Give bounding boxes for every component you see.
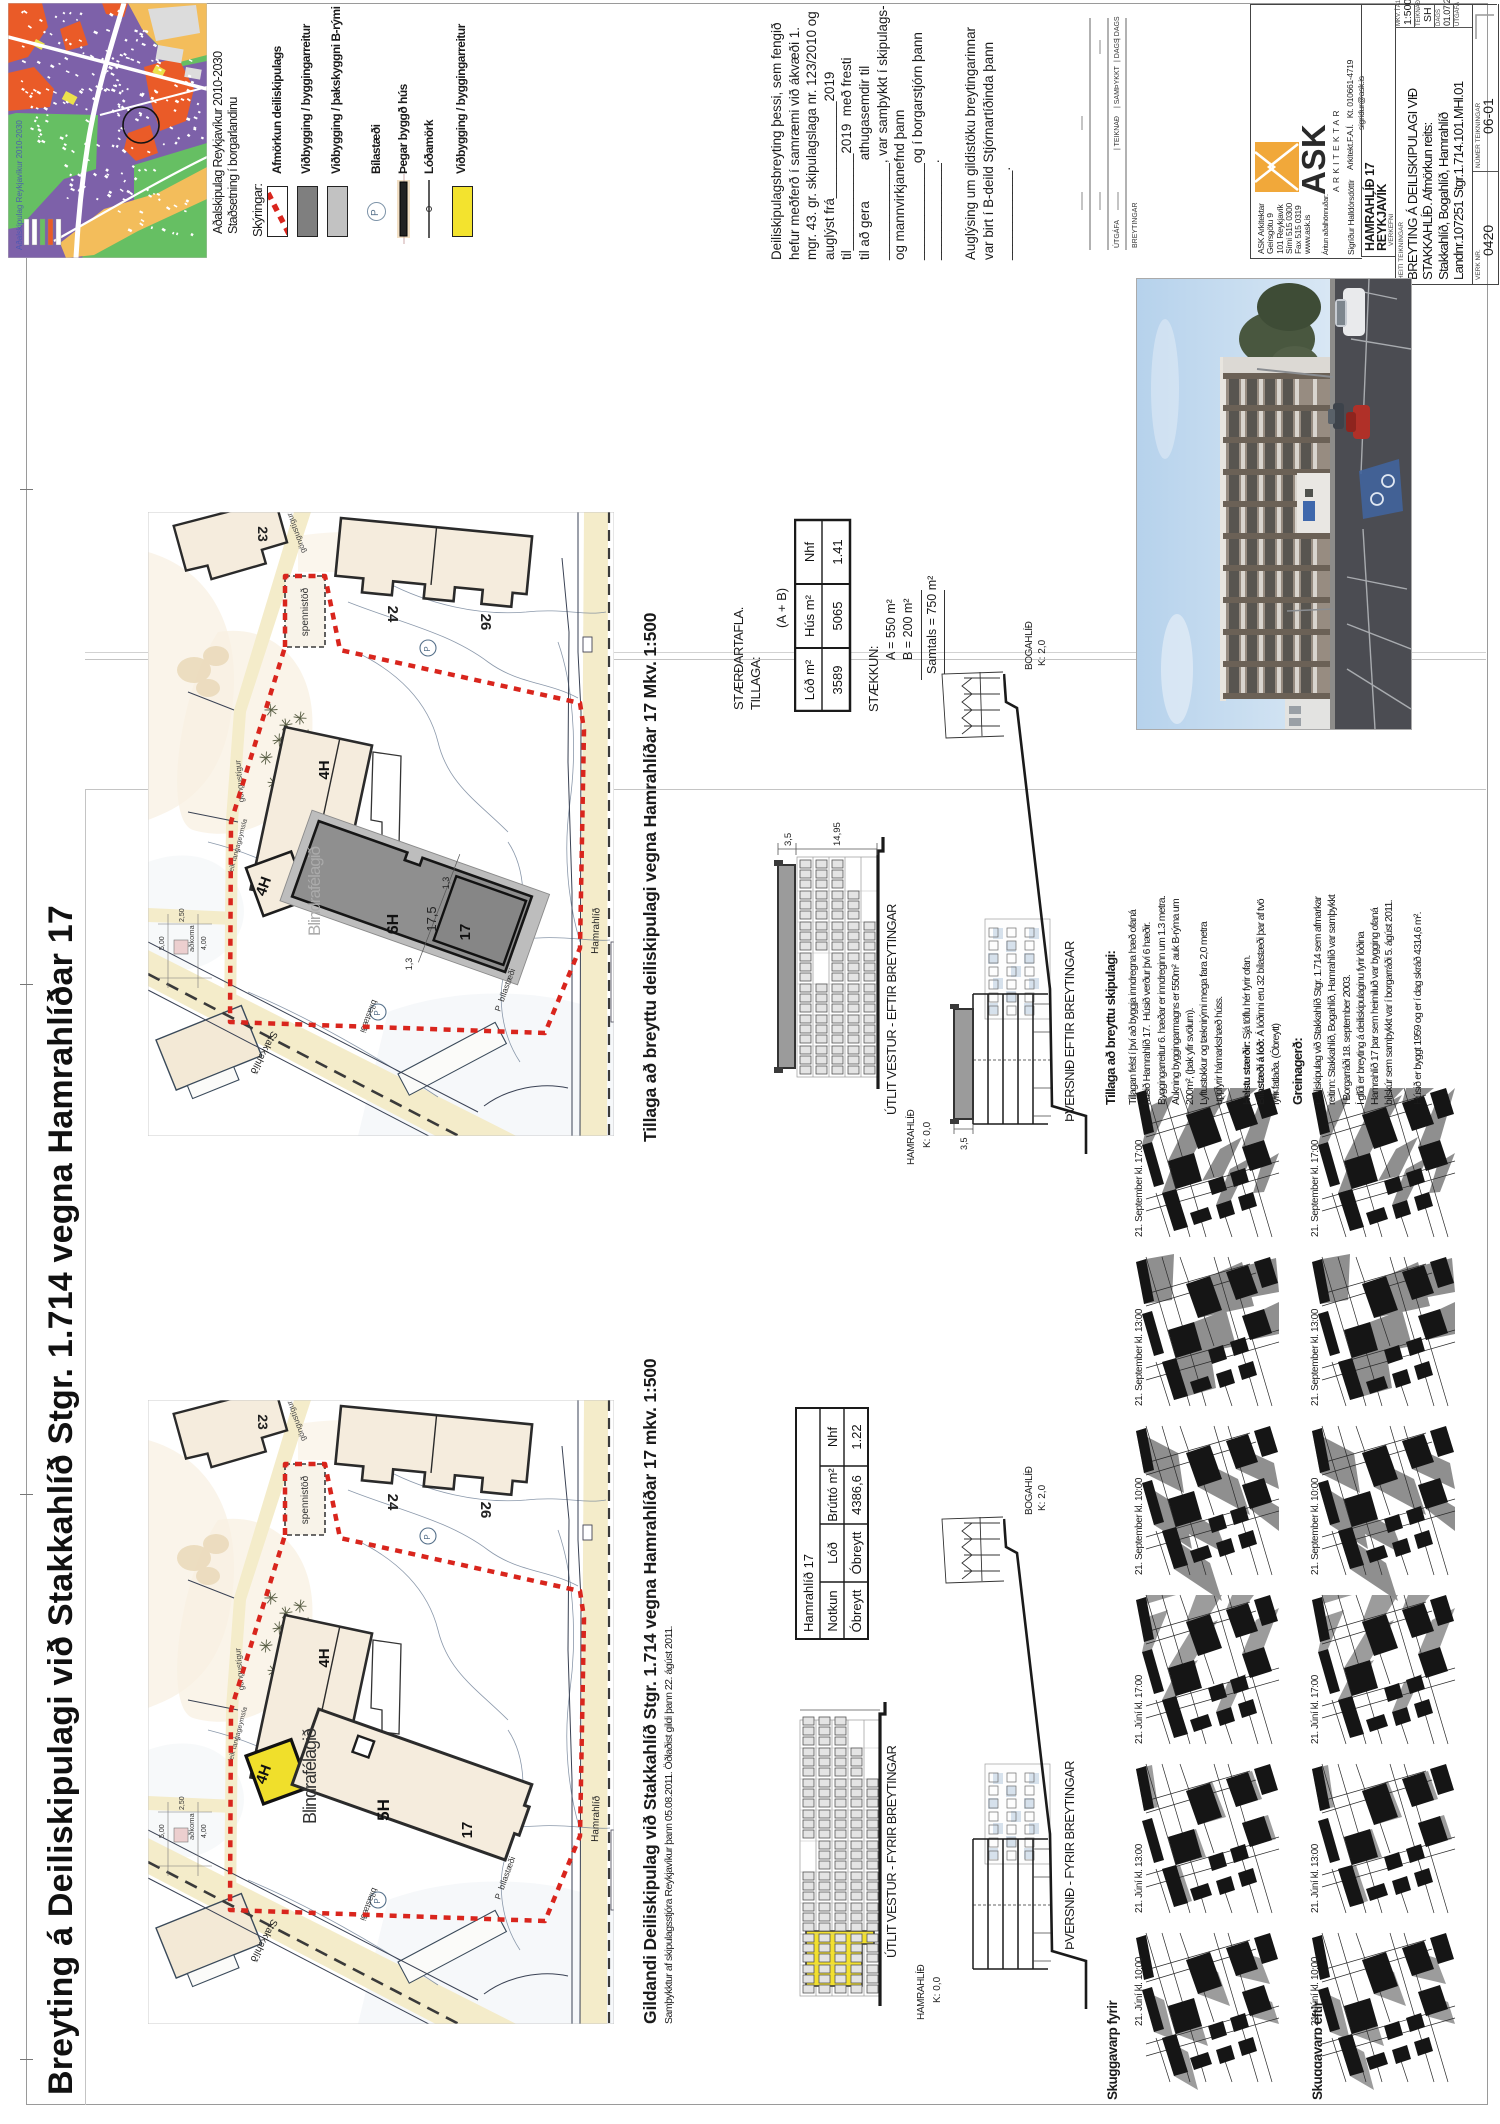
svg-text:23: 23: [255, 526, 271, 542]
svg-text:4H: 4H: [316, 1648, 333, 1667]
svg-text:HAMRAHLÍÐ: HAMRAHLÍÐ: [914, 1965, 927, 2020]
svg-text:K: 2,0: K: 2,0: [1037, 639, 1048, 666]
svg-text:| SAMÞYKKT: | SAMÞYKKT: [1114, 65, 1121, 108]
svg-text:aðkoma: aðkoma: [187, 924, 196, 952]
svg-text:21. Júní kl. 10:00: 21. Júní kl. 10:00: [1134, 1956, 1145, 2026]
svg-text:1,3: 1,3: [404, 958, 414, 971]
svg-text:Blindrafélagið: Blindrafélagið: [305, 846, 324, 936]
svg-text:1,3: 1,3: [441, 877, 451, 890]
svg-text:spennistöð: spennistöð: [299, 587, 311, 636]
svg-text:Brúttó m²: Brúttó m²: [825, 1468, 840, 1522]
svg-text:BREYTINGAR: BREYTINGAR: [1132, 202, 1139, 248]
svg-text:Nhf: Nhf: [825, 1426, 840, 1447]
svg-text:21. September kl. 17:00: 21. September kl. 17:00: [1310, 1139, 1321, 1237]
svg-text:Hamrahlíð: Hamrahlíð: [589, 907, 603, 954]
svg-text:2,50: 2,50: [179, 1796, 186, 1810]
svg-text:14,95: 14,95: [832, 822, 843, 846]
svg-text:5,00: 5,00: [159, 936, 166, 950]
svg-text:Óbreytt: Óbreytt: [849, 1589, 864, 1632]
svg-text:4,00: 4,00: [201, 1824, 208, 1838]
svg-text:Notkun: Notkun: [825, 1590, 840, 1631]
svg-text:17: 17: [457, 924, 474, 941]
svg-text:P: P: [423, 646, 432, 651]
svg-text:21. September kl. 13:00: 21. September kl. 13:00: [1310, 1308, 1321, 1406]
svg-text:26: 26: [477, 614, 494, 631]
svg-text:21. September kl. 10:00: 21. September kl. 10:00: [1310, 1477, 1321, 1575]
svg-text:21. September kl. 13:00: 21. September kl. 13:00: [1134, 1308, 1145, 1406]
svg-text:2,50: 2,50: [179, 908, 186, 922]
svg-text:Blindrafélagið: Blindrafélagið: [300, 1728, 320, 1824]
svg-text:BOGAHLÍÐ: BOGAHLÍÐ: [1022, 621, 1035, 670]
svg-text:3,5: 3,5: [783, 833, 794, 846]
svg-text:21. Júní kl. 13:00: 21. Júní kl. 13:00: [1134, 1843, 1145, 1913]
svg-text:24: 24: [384, 1494, 401, 1511]
svg-text:17: 17: [459, 1822, 476, 1839]
svg-text:K: 0,0: K: 0,0: [922, 1121, 933, 1148]
svg-text:HAMRAHLÍÐ: HAMRAHLÍÐ: [904, 1110, 917, 1165]
svg-text:17,5: 17,5: [424, 906, 439, 931]
svg-text:ÚTGÁFA: ÚTGÁFA: [1112, 220, 1121, 248]
svg-text:1.22: 1.22: [849, 1424, 864, 1449]
svg-text:21. Júní kl. 13:00: 21. Júní kl. 13:00: [1310, 1843, 1321, 1913]
svg-text:Hamrahlíð 17: Hamrahlíð 17: [801, 1554, 816, 1632]
svg-text:Lóð: Lóð: [825, 1542, 840, 1564]
svg-text:5,00: 5,00: [159, 1824, 166, 1838]
svg-text:21. September kl. 17:00: 21. September kl. 17:00: [1134, 1139, 1145, 1237]
svg-text:4386,6: 4386,6: [849, 1475, 864, 1515]
svg-text:spennistöð: spennistöð: [299, 1475, 311, 1524]
svg-text:K: 0,0: K: 0,0: [932, 1976, 943, 2003]
svg-text:Hamrahlíð: Hamrahlíð: [589, 1795, 603, 1842]
svg-text:| DAGS: | DAGS: [1114, 38, 1121, 62]
svg-text:5H: 5H: [374, 1799, 393, 1821]
svg-text:21. Júní kl. 10:00: 21. Júní kl. 10:00: [1310, 1956, 1321, 2026]
svg-text:Lóð m²: Lóð m²: [802, 659, 817, 700]
svg-text:5065: 5065: [830, 602, 845, 631]
svg-text:1.41: 1.41: [830, 539, 845, 564]
svg-text:Aðalskipulag Reykjavíkur 2010-: Aðalskipulag Reykjavíkur 2010-2030: [15, 120, 24, 250]
svg-text:21. Júní kl. 17:00: 21. Júní kl. 17:00: [1310, 1674, 1321, 1744]
svg-text:Hús m²: Hús m²: [802, 594, 817, 637]
svg-text:4H: 4H: [316, 760, 333, 779]
svg-text:3,5: 3,5: [959, 1137, 969, 1150]
svg-text:| DAGS: | DAGS: [1114, 16, 1121, 40]
svg-text:6H: 6H: [385, 914, 402, 934]
svg-text:BOGAHLÍÐ: BOGAHLÍÐ: [1022, 1466, 1035, 1515]
svg-text:23: 23: [255, 1414, 271, 1430]
svg-text:Óbreytt: Óbreytt: [849, 1531, 864, 1574]
svg-text:| TEIKNAÐ: | TEIKNAÐ: [1114, 116, 1121, 150]
svg-text:24: 24: [384, 606, 401, 623]
svg-text:aðkoma: aðkoma: [187, 1812, 196, 1840]
svg-text:4,00: 4,00: [201, 936, 208, 950]
svg-text:Nhf: Nhf: [802, 541, 817, 562]
svg-text:3589: 3589: [830, 666, 845, 695]
svg-text:21. September kl. 10:00: 21. September kl. 10:00: [1134, 1477, 1145, 1575]
svg-text:21. Júní kl. 17:00: 21. Júní kl. 17:00: [1134, 1674, 1145, 1744]
svg-text:P: P: [423, 1534, 432, 1539]
svg-text:K: 2,0: K: 2,0: [1037, 1484, 1048, 1511]
svg-text:26: 26: [477, 1502, 494, 1519]
